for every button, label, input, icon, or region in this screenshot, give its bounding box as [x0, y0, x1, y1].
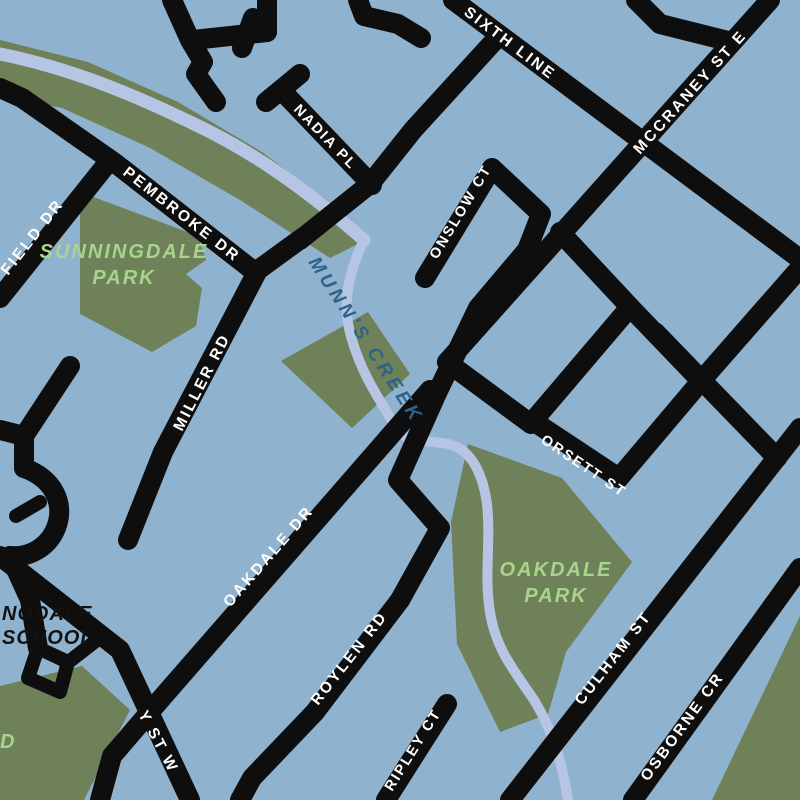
road-school-crescent-b [0, 430, 24, 436]
park-label-sunningdale-line1: SUNNINGDALE [40, 241, 209, 263]
school-label-line1: NGDALE [2, 603, 92, 625]
road-top-stub-cross [242, 18, 253, 48]
map-poster: SIXTH LINE MCCRANEY ST E NADIA PL PEMBRO… [0, 0, 800, 800]
park-label-partial-d: D [0, 731, 16, 753]
park-label-oakdale-line1: OAKDALE [500, 559, 613, 581]
map-canvas: SIXTH LINE MCCRANEY ST E NADIA PL PEMBRO… [0, 0, 800, 800]
park-label-oakdale-line2: PARK [524, 585, 587, 607]
school-label-line2: SCHOOL [2, 627, 94, 649]
park-label-sunningdale-line2: PARK [92, 267, 155, 289]
